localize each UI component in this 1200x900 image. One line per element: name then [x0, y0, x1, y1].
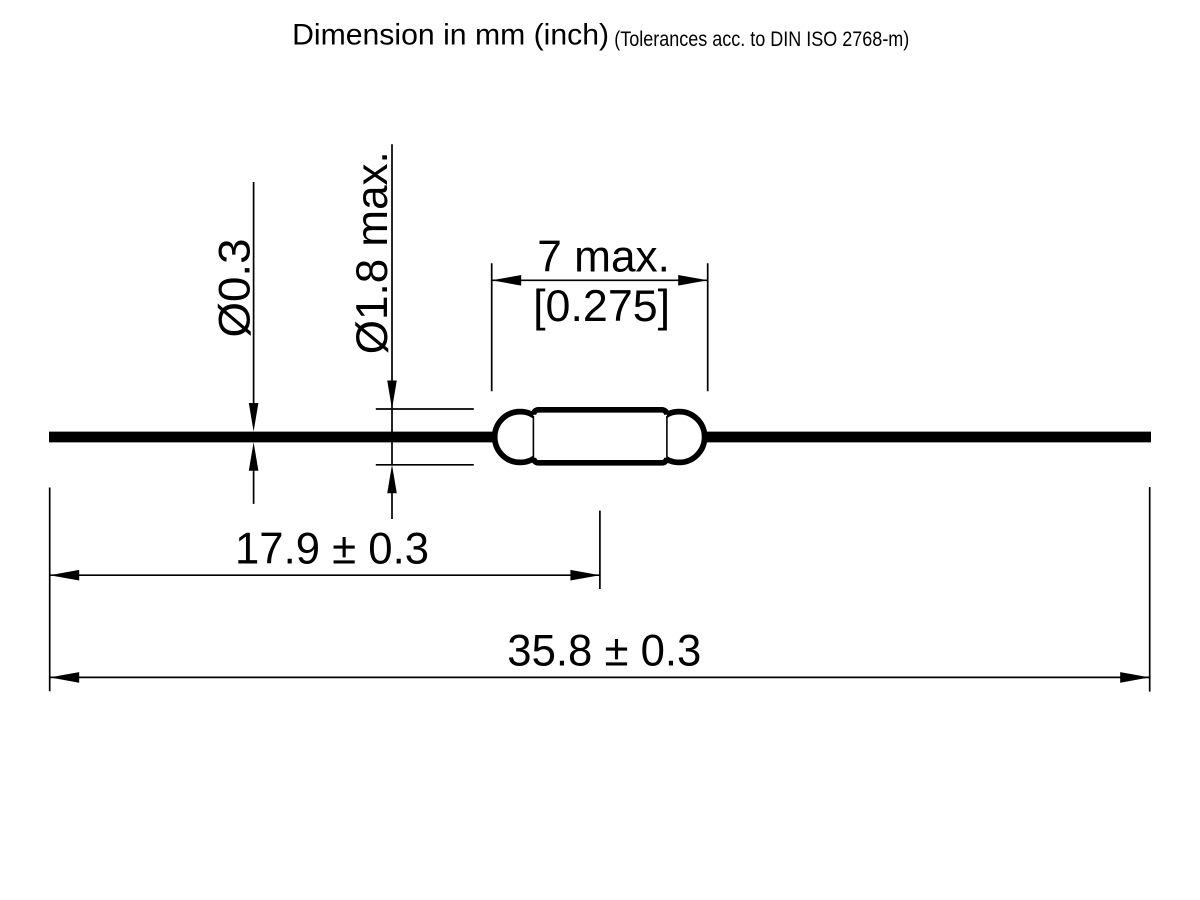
svg-text:[0.275]: [0.275] — [533, 282, 670, 331]
svg-text:35.8 ± 0.3: 35.8 ± 0.3 — [507, 626, 701, 675]
svg-text:17.9 ± 0.3: 17.9 ± 0.3 — [235, 524, 429, 573]
svg-text:Ø0.3: Ø0.3 — [211, 239, 260, 338]
svg-text:(Tolerances acc. to DIN ISO 27: (Tolerances acc. to DIN ISO 2768-m) — [614, 28, 909, 51]
svg-text:Dimension in mm (inch): Dimension in mm (inch) — [292, 19, 609, 52]
svg-text:Ø1.8 max.: Ø1.8 max. — [348, 151, 397, 354]
svg-text:7 max.: 7 max. — [537, 233, 670, 282]
